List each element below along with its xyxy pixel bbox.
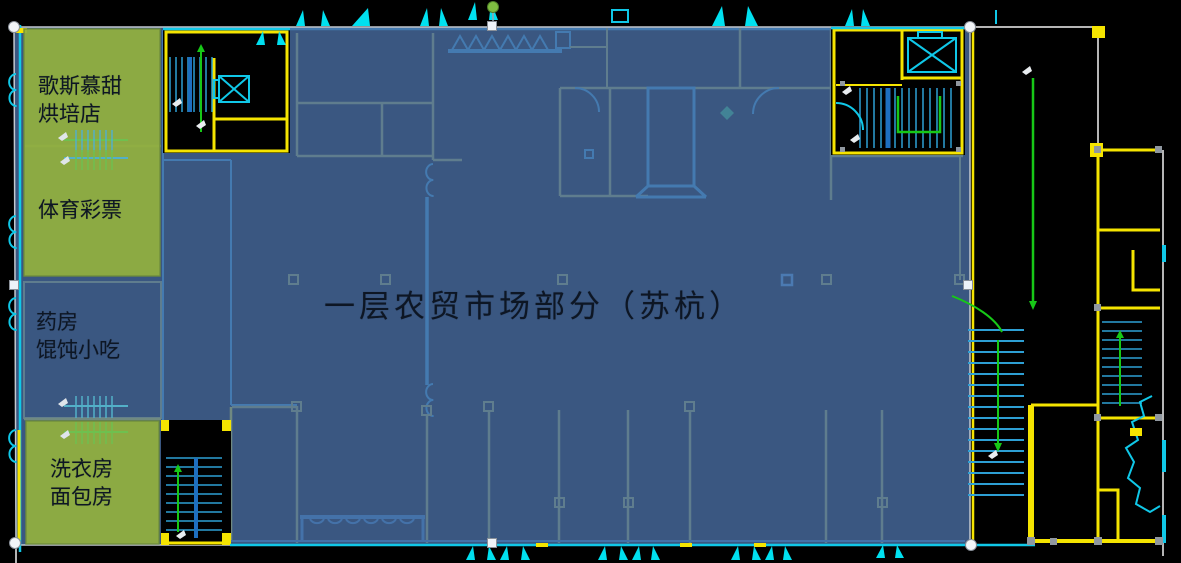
top-door-symbols <box>296 2 870 26</box>
handle-right-mid[interactable] <box>964 281 973 290</box>
right-wing <box>1027 146 1164 556</box>
handle-left-mid[interactable] <box>10 281 19 290</box>
label-laundry-line2: 面包房 <box>50 483 113 511</box>
handle-bottom-left[interactable] <box>10 538 21 549</box>
handle-top-mid[interactable] <box>488 22 497 31</box>
label-laundry-line1: 洗衣房 <box>50 455 113 483</box>
label-pharmacy[interactable]: 药房 馄饨小吃 <box>36 308 120 364</box>
stairwell-top-left <box>163 29 290 153</box>
slide-canvas: 歌斯慕甜 烘培店 体育彩票 药房 馄饨小吃 洗衣房 面包房 一层农贸市场部分（苏… <box>0 0 1181 563</box>
stairwell-top-right <box>831 28 965 155</box>
label-bakery-line1: 歌斯慕甜 <box>38 72 122 100</box>
title-text[interactable]: 一层农贸市场部分（苏杭） <box>324 281 744 326</box>
handle-bottom-mid[interactable] <box>488 539 497 548</box>
label-lottery-line1: 体育彩票 <box>38 196 122 224</box>
label-pharmacy-line2: 馄饨小吃 <box>36 336 120 364</box>
label-pharmacy-line1: 药房 <box>36 308 120 336</box>
label-bakery[interactable]: 歌斯慕甜 烘培店 <box>38 72 122 128</box>
handle-top-left[interactable] <box>9 22 20 33</box>
handle-bottom-right[interactable] <box>966 540 977 551</box>
stairwell-bottom-left <box>161 420 231 545</box>
handle-top-right[interactable] <box>965 22 976 33</box>
label-bakery-line2: 烘培店 <box>38 100 122 128</box>
bottom-door-symbols <box>466 545 904 560</box>
rotation-handle[interactable] <box>488 2 499 13</box>
label-laundry[interactable]: 洗衣房 面包房 <box>50 455 113 511</box>
shop-highlight-bakery-lottery[interactable] <box>24 29 160 276</box>
label-lottery[interactable]: 体育彩票 <box>38 196 122 224</box>
